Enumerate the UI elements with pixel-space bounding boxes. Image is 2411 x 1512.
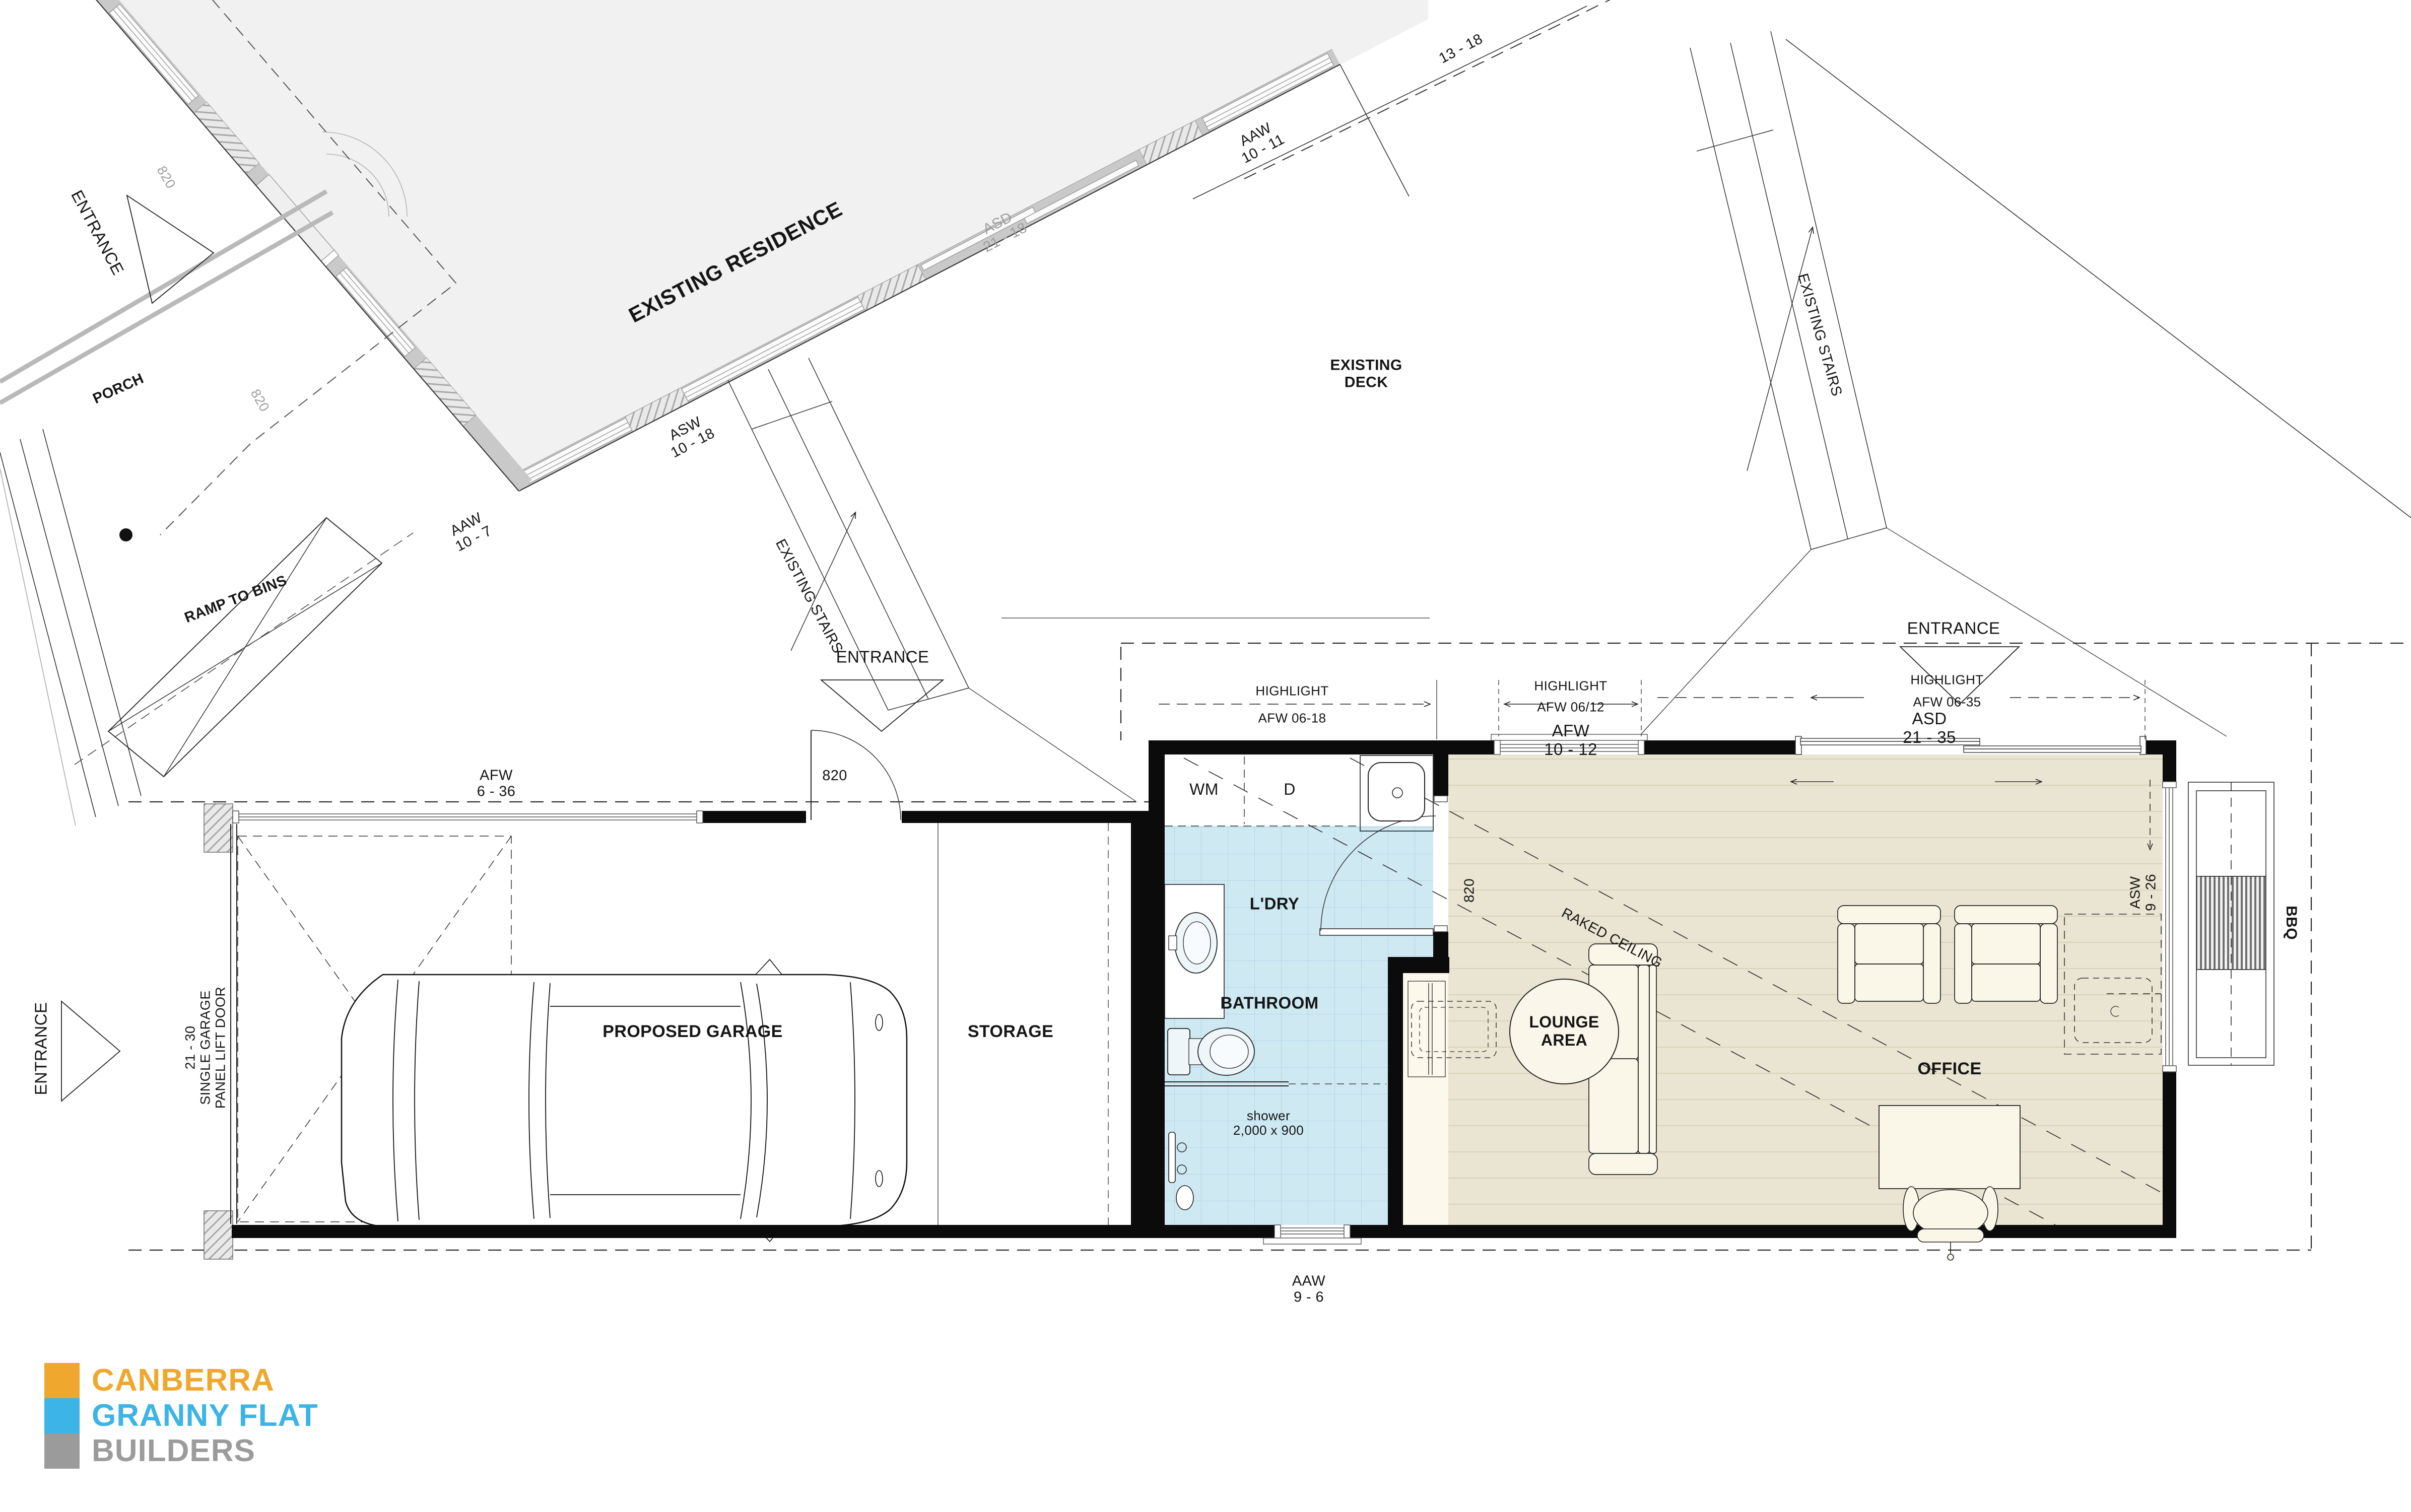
shower-label: shower 2,000 x 900	[1233, 1109, 1304, 1138]
bathroom-label: BATHROOM	[1220, 994, 1318, 1013]
tv-nook-floor	[1403, 972, 1448, 1225]
window-label-line: 9 - 26	[2143, 874, 2159, 911]
entrance-label-topright: ENTRANCE	[1907, 620, 2000, 638]
site-point-marker	[119, 528, 132, 541]
toilet-icon	[1168, 1028, 1254, 1075]
deck-label-line: EXISTING	[1330, 357, 1402, 374]
office-label: OFFICE	[1917, 1059, 1981, 1078]
deck-label-line: DECK	[1330, 374, 1402, 391]
door-label-line: ASD	[1903, 710, 1956, 728]
proposed-garage-label: PROPOSED GARAGE	[602, 1022, 782, 1041]
window-label-line: ASW	[2127, 874, 2143, 911]
door-820-laundry-label: 820	[1461, 878, 1477, 903]
window-label-line: 9 - 6	[1292, 1289, 1325, 1305]
window-label-asw-9-26: ASW 9 - 26	[2127, 874, 2159, 911]
lounge-label-line: AREA	[1529, 1032, 1599, 1050]
dryer-label: D	[1284, 781, 1296, 799]
entrance-label-mid: ENTRANCE	[836, 648, 929, 667]
plan-linework	[0, 0, 2411, 1512]
bbq-label: BBQ	[2283, 906, 2300, 940]
logo-row-granny-flat: GRANNY FLAT	[44, 1398, 318, 1433]
window-label-aaw-9-6: AAW 9 - 6	[1292, 1273, 1325, 1306]
window-label-afw-6-36: AFW 6 - 36	[477, 768, 516, 800]
washing-machine-label: WM	[1189, 781, 1219, 799]
window-asw-9-26	[2163, 782, 2176, 1072]
garage-door-label-line: 21 - 30	[183, 987, 198, 1109]
lounge-area-label: LOUNGE AREA	[1529, 1013, 1599, 1050]
garage-door-label-line: PANEL LIFT DOOR	[213, 987, 228, 1109]
window-label-line: AAW	[1292, 1273, 1325, 1289]
highlight-afw-06-18-label: HIGHLIGHT	[1255, 683, 1328, 698]
window-label-line: 10 - 12	[1544, 740, 1597, 759]
highlight-afw-06-35-label: HIGHLIGHT	[1910, 672, 1983, 687]
bbq-unit	[2188, 782, 2274, 1065]
window-label-line: 6 - 36	[477, 784, 516, 800]
window-aaw-9-6	[1263, 1225, 1361, 1244]
existing-residence-shape	[0, 0, 1428, 491]
logo-builders-text: BUILDERS	[92, 1435, 255, 1467]
highlight-afw-06-35-label2: AFW 06-35	[1913, 695, 1981, 709]
highlight-afw-06-12-label: HIGHLIGHT	[1534, 678, 1607, 693]
logo-granny-flat-text: GRANNY FLAT	[92, 1400, 318, 1431]
floor-plan: EXISTING RESIDENCE PORCH ENTRANCE 820 82…	[0, 0, 2411, 1512]
window-label-line: AFW	[477, 768, 516, 784]
highlight-afw-06-12-label2: AFW 06/12	[1537, 700, 1604, 714]
shower-label-line: 2,000 x 900	[1233, 1123, 1304, 1138]
lounge-label-line: LOUNGE	[1529, 1013, 1599, 1032]
window-afw-6-36	[233, 811, 703, 823]
logo-row-canberra: CANBERRA	[44, 1363, 318, 1398]
door-820-garage-label: 820	[822, 768, 847, 784]
entrance-arrow-mid	[821, 680, 943, 731]
laundry-label: L'DRY	[1250, 895, 1299, 914]
office-chair	[1903, 1187, 1998, 1260]
garage-door-label: 21 - 30 SINGLE GARAGE PANEL LIFT DOOR	[183, 987, 229, 1109]
highlight-afw-06-18-label2: AFW 06-18	[1258, 711, 1326, 725]
existing-deck-label: EXISTING DECK	[1330, 357, 1402, 390]
window-label-line: AFW	[1544, 722, 1597, 740]
company-logo: CANBERRA GRANNY FLAT BUILDERS	[44, 1363, 318, 1469]
vanity-sink-icon	[1165, 884, 1224, 1018]
car	[342, 959, 907, 1242]
shower-label-line: shower	[1233, 1109, 1304, 1123]
laundry-sink-icon	[1368, 763, 1425, 821]
logo-canberra-text: CANBERRA	[92, 1365, 275, 1396]
logo-orange-square-icon	[44, 1363, 80, 1398]
window-label-afw-10-12: AFW 10 - 12	[1544, 722, 1597, 759]
armchair	[1838, 906, 1940, 1003]
logo-gray-square-icon	[44, 1433, 80, 1469]
door-label-asd-21-35: ASD 21 - 35	[1903, 710, 1956, 747]
garage-panel-door	[231, 824, 237, 1224]
armchair	[1955, 906, 2057, 1003]
entrance-arrow-left	[61, 1001, 120, 1101]
stairs-left-shape	[728, 358, 1430, 802]
desk	[1879, 1106, 2020, 1189]
door-label-line: 21 - 35	[1903, 728, 1956, 747]
storage-label: STORAGE	[968, 1022, 1053, 1041]
entrance-label-left: ENTRANCE	[32, 1002, 51, 1095]
garage-door-label-line: SINGLE GARAGE	[198, 987, 213, 1109]
logo-blue-square-icon	[44, 1398, 80, 1433]
logo-row-builders: BUILDERS	[44, 1433, 318, 1469]
